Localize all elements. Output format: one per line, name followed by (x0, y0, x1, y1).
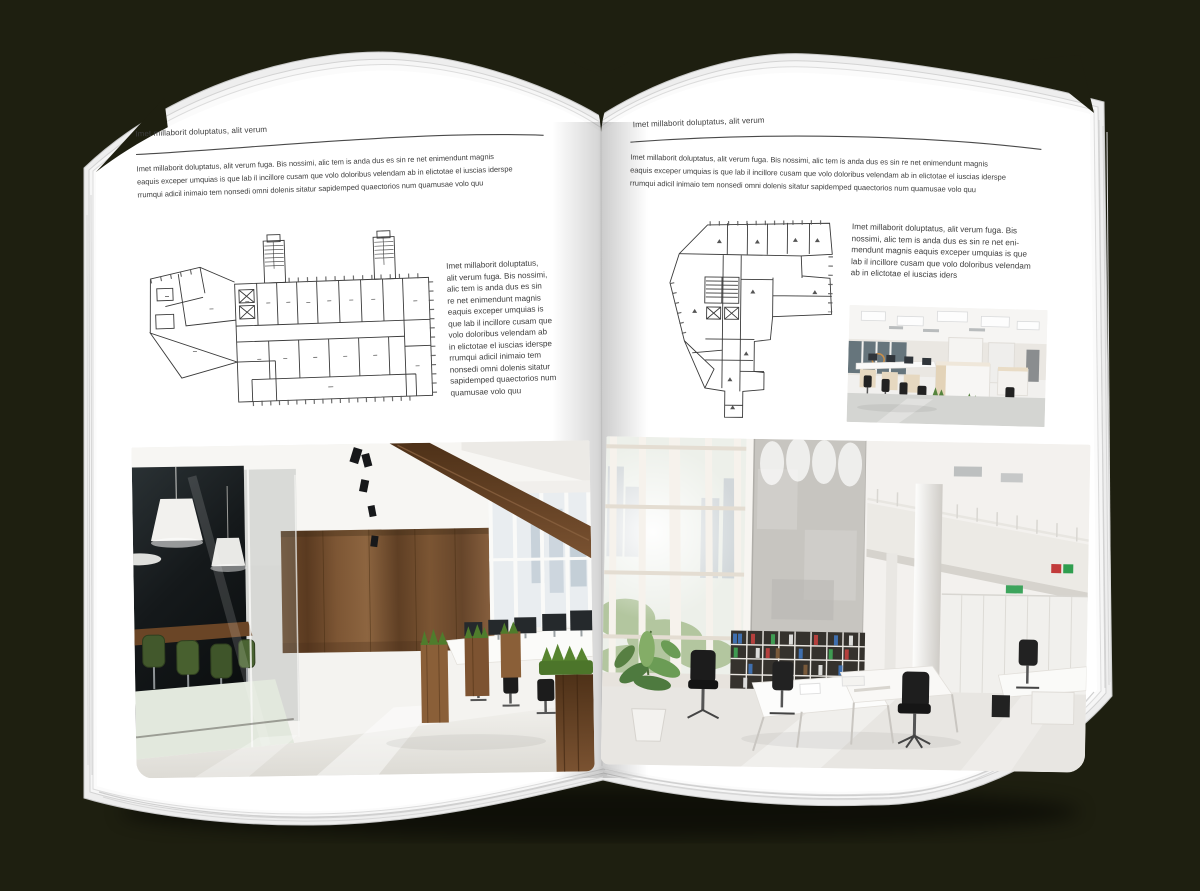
page-title: Imet millaborit doluptatus, alit verum (633, 116, 765, 130)
aid-sign (1063, 564, 1073, 573)
plan-marks (691, 237, 820, 410)
floor-plan-right (648, 218, 842, 422)
fire-sign (1051, 564, 1061, 573)
book-spread-scene: Imet millaborit doluptatus, alit verum I… (0, 0, 1200, 891)
plant-pot (631, 709, 666, 742)
sidebar-paragraph: Imet millaborit doluptatus,alit verum fu… (446, 257, 557, 399)
right-page: Imet millaborit doluptatus, alit verum I… (606, 98, 1097, 789)
waste-bin (992, 695, 1010, 717)
office-photo-small-art (847, 305, 1048, 427)
office-photo-right (601, 436, 1091, 772)
body-paragraph: Imet millaborit doluptatus, alit verum f… (851, 221, 1032, 283)
concrete-wall (751, 437, 866, 637)
office-photo-left (131, 440, 594, 778)
office-photo-left-art (131, 440, 594, 778)
office-photo-small (847, 305, 1048, 427)
left-page: Imet millaborit doluptatus, alit verum I… (109, 98, 607, 796)
page-title: Imet millaborit doluptatus, alit verum (135, 125, 267, 139)
floor-plan-left-drawing (143, 225, 441, 417)
floor (847, 393, 1046, 427)
intro-paragraph: Imet millaborit doluptatus, alit verum f… (136, 150, 513, 201)
intro-paragraph: Imet millaborit doluptatus, alit verum f… (630, 152, 1007, 198)
glass-meeting-room (131, 465, 300, 760)
floor-plan-right-drawing (648, 218, 842, 422)
wood-panel-wall (281, 528, 495, 653)
floor-plan-left (143, 225, 441, 417)
office-photo-right-art (601, 436, 1091, 772)
exit-sign (1006, 585, 1023, 593)
header-rule (628, 130, 1044, 152)
